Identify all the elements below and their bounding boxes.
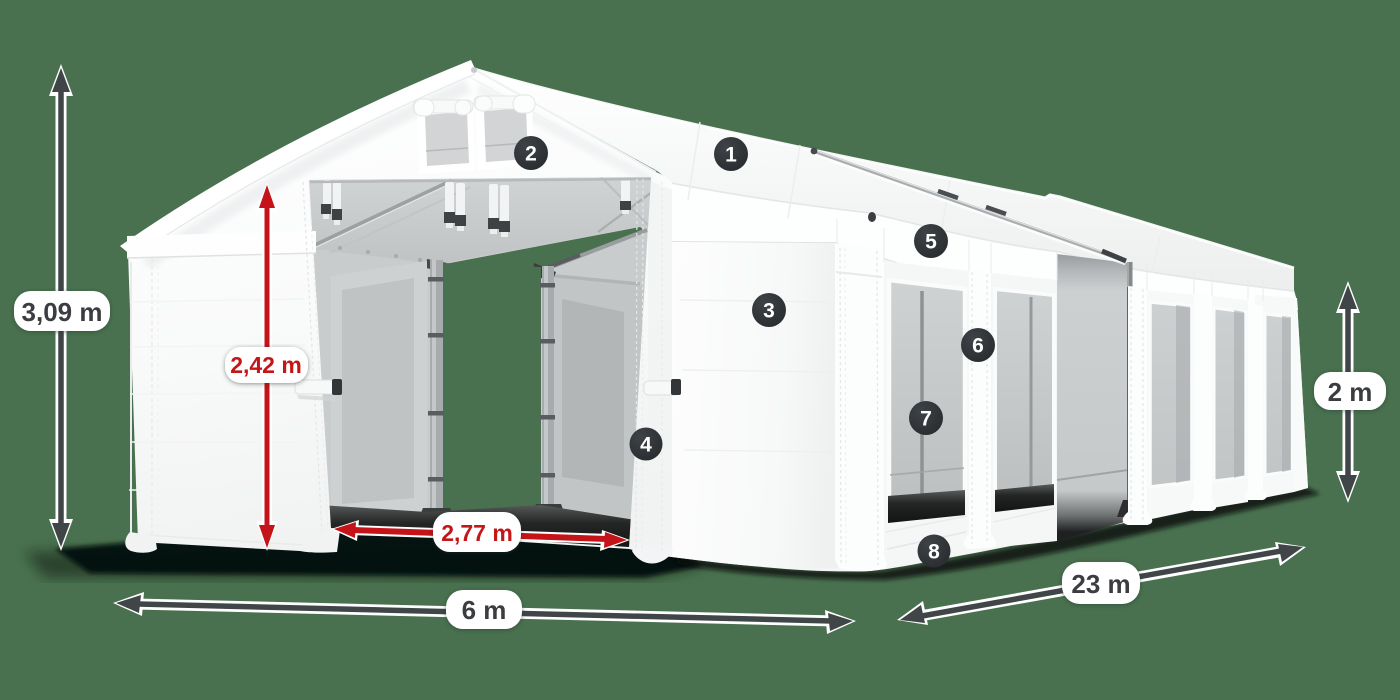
svg-text:3: 3 (763, 300, 775, 323)
svg-text:2: 2 (525, 143, 537, 166)
svg-text:23 m: 23 m (1071, 569, 1130, 599)
svg-text:5: 5 (925, 231, 937, 254)
svg-text:4: 4 (640, 434, 652, 457)
svg-text:8: 8 (928, 541, 940, 564)
svg-text:2 m: 2 m (1328, 377, 1373, 407)
svg-text:1: 1 (725, 144, 737, 167)
svg-text:2,77 m: 2,77 m (441, 520, 513, 546)
svg-text:6: 6 (972, 335, 984, 358)
svg-text:7: 7 (920, 408, 932, 431)
svg-text:6 m: 6 m (462, 595, 507, 625)
svg-text:3,09 m: 3,09 m (22, 297, 103, 327)
svg-text:2,42 m: 2,42 m (230, 352, 302, 378)
